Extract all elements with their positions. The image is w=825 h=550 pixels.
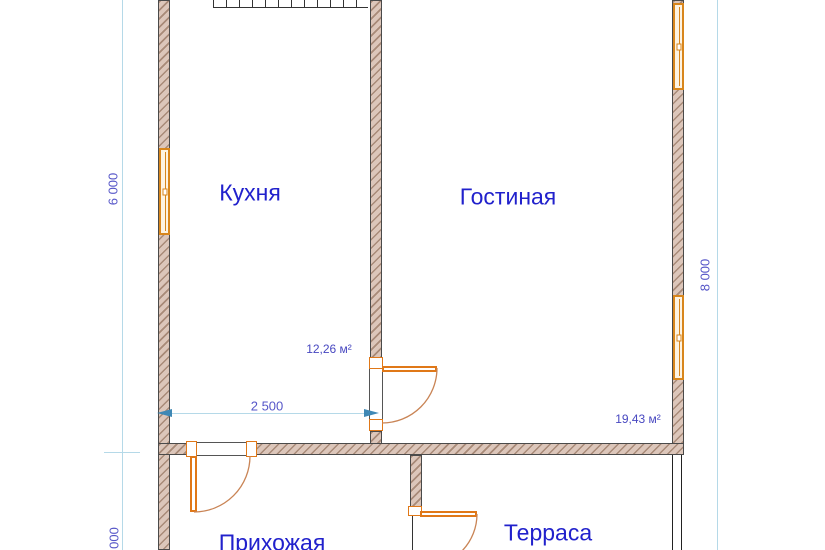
terrace-right-edge	[672, 455, 682, 550]
dimension-label-6000: 6 000	[106, 173, 121, 206]
window-handle	[676, 43, 681, 50]
room-label-hallway: Прихожая	[219, 530, 326, 550]
room-label-living: Гостиная	[460, 184, 557, 211]
door-arc-kitchen-living	[382, 368, 437, 423]
door-leaf-terrace	[420, 511, 477, 517]
wall-divider-kitchen-living	[370, 0, 382, 359]
stairs-top	[213, 0, 368, 8]
door-jamb	[369, 357, 383, 369]
room-label-terrace: Терраса	[504, 520, 592, 547]
window-handle	[162, 188, 167, 195]
door-jamb	[369, 419, 383, 431]
window-right-top	[673, 3, 684, 90]
window-right-middle	[673, 295, 684, 380]
door-leaf-kitchen-living	[382, 366, 437, 372]
dimension-label-bottom-cut: 000	[107, 527, 122, 549]
area-label-living: 19,43 м²	[615, 412, 661, 426]
door-arc-hallway	[194, 456, 250, 512]
dimension-tick-left	[104, 452, 140, 453]
terrace-door-frame-line	[412, 516, 413, 550]
door-jamb	[186, 441, 197, 457]
door-opening-hallway	[188, 442, 253, 456]
dimension-label-2500: 2 500	[251, 399, 284, 414]
floor-plan: Кухня Гостиная Прихожая Терраса 12,26 м²…	[0, 0, 825, 550]
window-handle	[676, 334, 681, 341]
dimension-label-8000: 8 000	[698, 259, 713, 292]
wall-divider-hallway-terrace	[410, 455, 422, 508]
wall-left-exterior	[158, 0, 170, 550]
door-opening-kitchen-living	[369, 369, 383, 419]
window-left	[159, 148, 170, 235]
dimension-line-left	[122, 0, 123, 550]
door-jamb	[246, 441, 257, 457]
area-label-kitchen: 12,26 м²	[306, 342, 352, 356]
dimension-line-right	[717, 0, 718, 550]
room-label-kitchen: Кухня	[219, 180, 281, 207]
door-leaf-hallway	[190, 456, 197, 512]
door-arc-terrace	[424, 514, 477, 550]
